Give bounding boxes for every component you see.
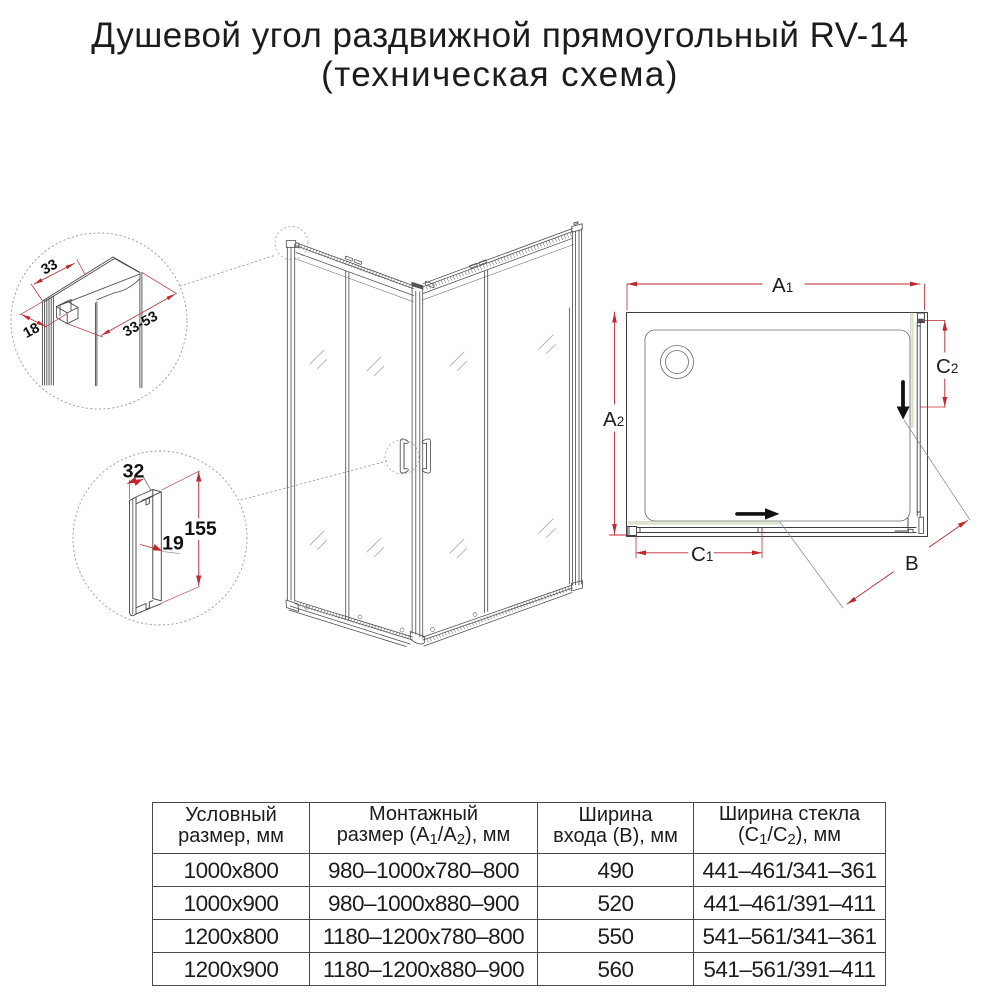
svg-text:33: 33 — [39, 257, 61, 279]
svg-text:C1: C1 — [691, 543, 713, 566]
svg-text:A2: A2 — [603, 408, 624, 431]
svg-text:B: B — [905, 552, 919, 575]
svg-text:19: 19 — [162, 533, 184, 555]
svg-text:A1: A1 — [772, 274, 793, 297]
svg-text:32: 32 — [123, 461, 145, 483]
svg-text:C2: C2 — [936, 355, 958, 378]
svg-text:155: 155 — [184, 518, 217, 540]
